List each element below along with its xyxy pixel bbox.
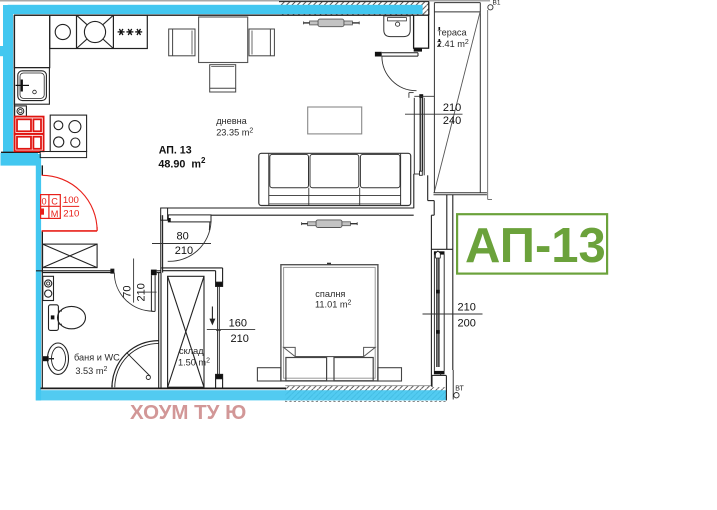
svg-text:100: 100 [63,195,79,206]
svg-text:80: 80 [177,230,189,242]
svg-text:В1: В1 [493,0,501,7]
svg-text:1.50 m2: 1.50 m2 [178,357,210,367]
svg-text:спалня: спалня [315,289,345,299]
svg-text:ХОУМ ТУ Ю: ХОУМ ТУ Ю [130,401,246,424]
svg-text:склад: склад [179,346,204,356]
svg-text:2.41 m2: 2.41 m2 [437,39,469,49]
svg-text:0: 0 [42,197,47,207]
svg-text:АП-13: АП-13 [465,219,606,273]
svg-text:160: 160 [229,318,247,330]
svg-text:дневна: дневна [216,116,247,126]
svg-text:М: М [51,209,59,219]
svg-text:210: 210 [231,333,249,345]
svg-text:240: 240 [443,115,461,127]
svg-text:23.35 m2: 23.35 m2 [216,128,253,138]
svg-text:210: 210 [458,301,476,313]
svg-text:210: 210 [175,245,193,257]
svg-text:48.90 m2: 48.90 m2 [158,156,206,171]
svg-text:тераса: тераса [438,27,468,37]
svg-text:210: 210 [443,102,461,114]
svg-text:200: 200 [458,318,476,330]
svg-text:АП. 13: АП. 13 [159,144,192,156]
svg-text:С: С [51,197,58,207]
svg-text:ВТ: ВТ [455,385,464,392]
svg-text:баня и WC: баня и WC [74,352,120,362]
svg-text:70: 70 [121,286,133,298]
svg-text:3.53 m2: 3.53 m2 [75,366,107,376]
svg-text:11.01 m2: 11.01 m2 [315,300,352,310]
svg-text:210: 210 [63,208,79,219]
